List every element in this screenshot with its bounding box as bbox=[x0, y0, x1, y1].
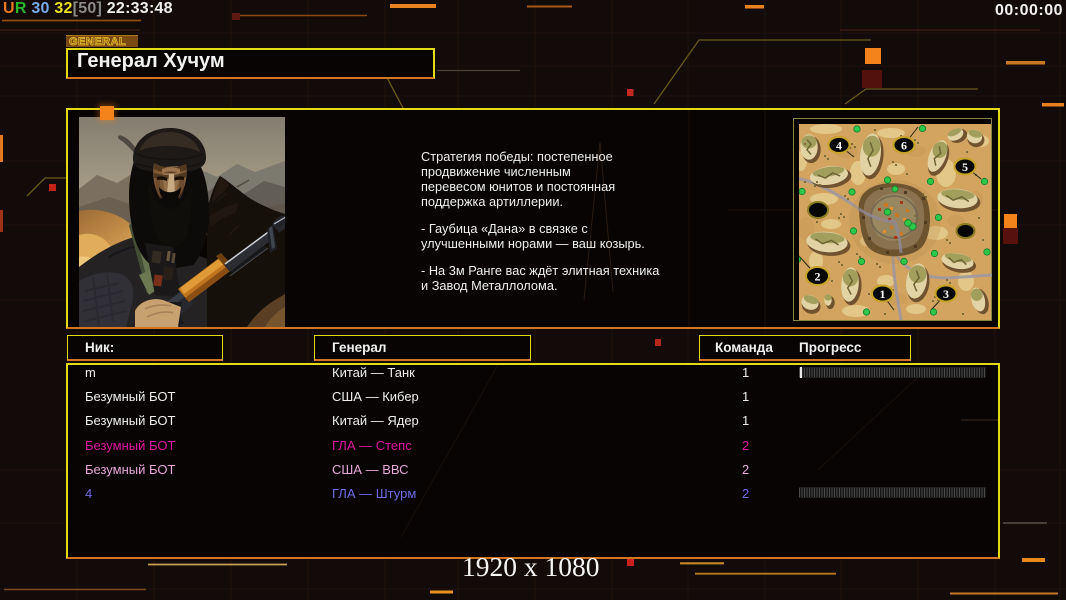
svg-text:1: 1 bbox=[880, 287, 886, 301]
svg-text:6: 6 bbox=[901, 139, 907, 153]
svg-text:3: 3 bbox=[943, 287, 949, 301]
svg-text:2: 2 bbox=[815, 270, 821, 284]
svg-text:5: 5 bbox=[962, 160, 968, 174]
svg-text:4: 4 bbox=[836, 139, 842, 153]
